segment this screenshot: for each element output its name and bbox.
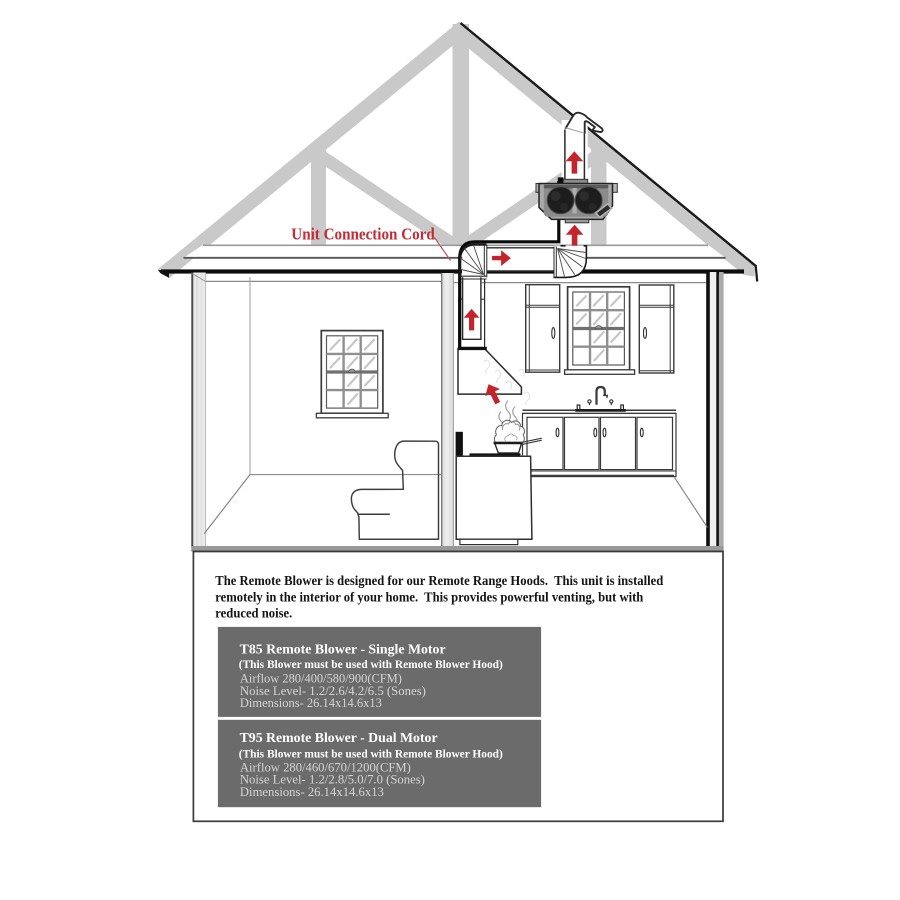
svg-text:Dimensions- 26.14x14.6x13: Dimensions- 26.14x14.6x13	[240, 695, 382, 710]
svg-text:remotely in the interior of yo: remotely in the interior of your home. T…	[215, 590, 643, 605]
svg-text:Unit Connection Cord: Unit Connection Cord	[291, 225, 435, 244]
svg-text:(This Blower must be used with: (This Blower must be used with Remote Bl…	[239, 659, 503, 671]
svg-text:The Remote Blower is designed: The Remote Blower is designed for our Re…	[215, 574, 663, 589]
svg-text:reduced noise.: reduced noise.	[215, 606, 292, 621]
svg-text:Dimensions- 26.14x14.6x13: Dimensions- 26.14x14.6x13	[240, 784, 384, 799]
svg-text:T95 Remote Blower - Dual Motor: T95 Remote Blower - Dual Motor	[240, 731, 438, 746]
svg-text:T85 Remote Blower - Single Mot: T85 Remote Blower - Single Motor	[240, 642, 446, 657]
